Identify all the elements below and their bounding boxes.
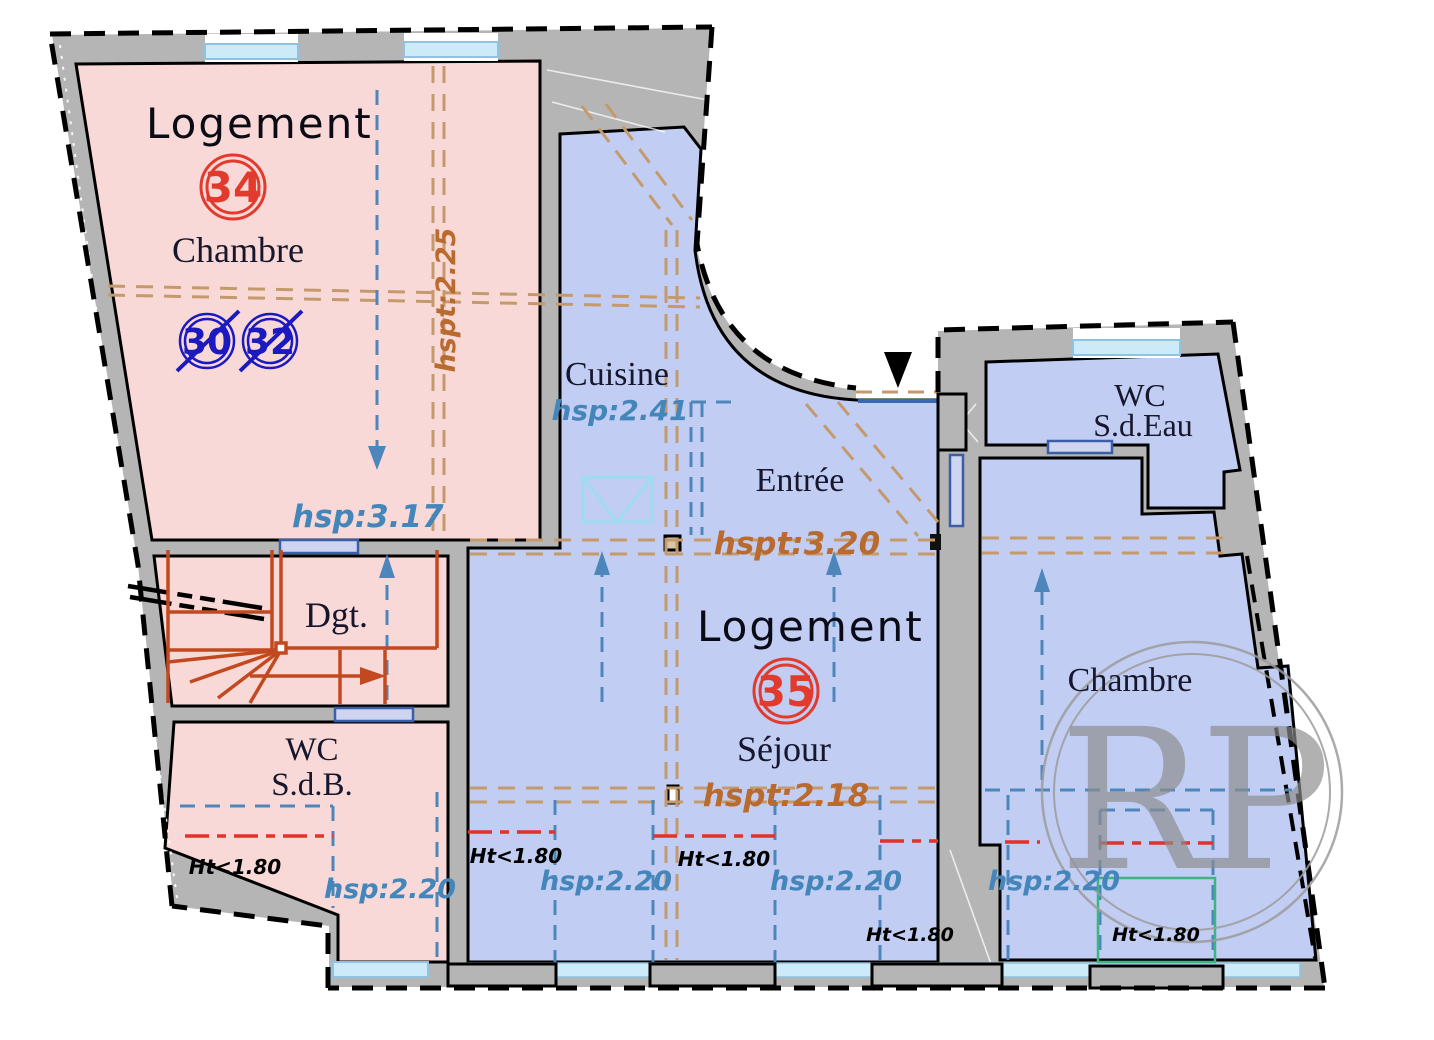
old-number-30: 30: [182, 322, 232, 363]
room-label-entree: Entrée: [756, 462, 845, 499]
floor-plan-drawing: RP Logement 34 Chambre 30 32 hspt:2.25 h…: [0, 0, 1434, 1040]
room-dgt: [154, 556, 448, 706]
height-hspt-225: hspt:2.25: [431, 228, 462, 373]
room-label-wc-sdb-1: WC: [285, 732, 338, 768]
height-hspt-218: hspt:2.18: [703, 778, 869, 814]
window-top-2: [404, 33, 498, 61]
post-entree-right: [930, 534, 941, 550]
room-label-wc-sdeau-2: S.d.Eau: [1093, 407, 1193, 443]
door-entree-chambre35: [950, 455, 963, 526]
height-ht180-sejour-1: Ht<1.80: [470, 844, 562, 868]
apartment-35-number: 35: [757, 667, 815, 716]
room-label-dgt: Dgt.: [305, 595, 368, 635]
height-hsp-241: hsp:2.41: [552, 394, 689, 427]
door-chambre34-dgt: [280, 540, 358, 553]
bottom-wall-pier: [1090, 966, 1223, 988]
height-hsp-317: hsp:3.17: [292, 499, 444, 535]
height-hsp220-sejour-right: hsp:2.20: [770, 866, 902, 897]
window-top-right: [1073, 328, 1180, 358]
window-top-1: [205, 34, 298, 62]
height-ht180-chambre35: Ht<1.80: [1112, 924, 1200, 946]
height-hsp220-sejour-left: hsp:2.20: [540, 866, 672, 897]
door-dgt-wc: [335, 708, 413, 721]
bottom-wall-pier: [872, 964, 1002, 986]
height-ht180-wc-sdb: Ht<1.80: [189, 855, 281, 879]
apartment-34-title: Logement: [146, 99, 373, 148]
bottom-wall-pier: [650, 964, 775, 986]
height-hspt-320: hspt:3.20: [714, 526, 880, 562]
entrance-pier: [938, 394, 966, 450]
height-hsp220-chambre35: hsp:2.20: [988, 866, 1120, 897]
apartment-35-title: Logement: [697, 602, 924, 651]
room-label-chambre-35: Chambre: [1068, 662, 1193, 699]
room-label-wc-sdb-2: S.d.B.: [271, 767, 353, 803]
height-ht180-sejour-2: Ht<1.80: [678, 847, 770, 871]
room-label-cuisine: Cuisine: [565, 356, 669, 393]
bottom-wall-pier: [448, 964, 556, 986]
room-label-sejour: Séjour: [737, 729, 831, 769]
height-ht180-sejour-3: Ht<1.80: [866, 924, 954, 946]
height-hsp220-strip34: hsp:2.20: [324, 874, 456, 905]
room-label-chambre-34: Chambre: [172, 230, 304, 270]
apartment-34-number: 34: [204, 163, 262, 212]
entrance-arrow: [884, 352, 912, 388]
old-number-32: 32: [245, 322, 295, 363]
floor-plan-page: RP Logement 34 Chambre 30 32 hspt:2.25 h…: [0, 0, 1434, 1040]
